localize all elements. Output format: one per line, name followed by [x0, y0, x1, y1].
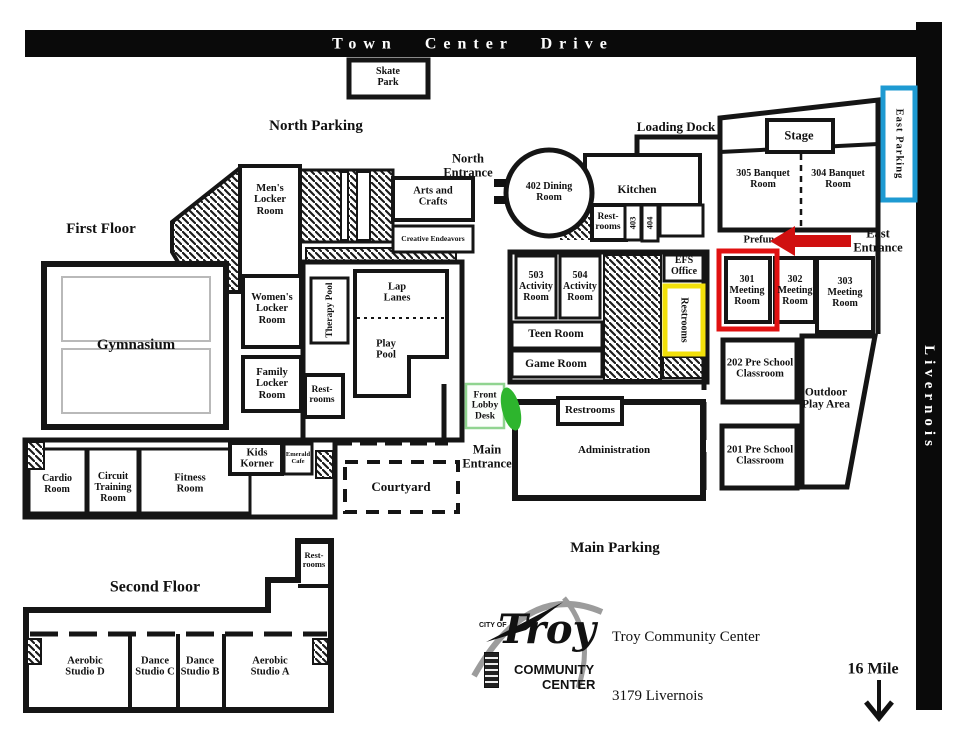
label-restrooms-second-floor: Rest- rooms [297, 551, 331, 569]
label-meeting-301: 301 Meeting Room [724, 275, 770, 307]
label-banquet-305: 305 Banquet Room [735, 169, 791, 191]
label-restrooms-dining: Rest- rooms [590, 212, 626, 233]
label-meeting-303: 303 Meeting Room [822, 277, 868, 309]
label-fitness-room: Fitness Room [167, 473, 213, 496]
locker-pool-walls [243, 262, 462, 440]
label-creative-endeavors: Creative Endeavors [401, 235, 464, 243]
label-sixteen-mile: 16 Mile [847, 660, 898, 677]
logo-community-text: COMMUNITY [514, 662, 594, 677]
label-gymnasium: Gymnasium [97, 337, 175, 353]
label-game-room: Game Room [525, 358, 587, 370]
label-room-403: 403 [628, 217, 637, 230]
label-arts-and-crafts: Arts and Crafts [401, 186, 465, 209]
label-efs-office: EFS Office [664, 256, 704, 278]
label-skate-park: Skate Park [365, 67, 411, 89]
label-courtyard: Courtyard [371, 480, 430, 494]
label-east-entrance: East Entrance [842, 228, 914, 255]
label-first-floor: First Floor [66, 221, 136, 237]
label-restrooms-yellow: Restrooms [678, 297, 689, 342]
label-prefunction: Prefunction [744, 234, 797, 245]
address-line-2: 3179 Livernois [612, 687, 760, 707]
road-label-livernois: Livernois [921, 345, 937, 451]
label-dining-402: 402 Dining Room [525, 182, 573, 204]
label-stage: Stage [784, 129, 813, 143]
label-emerald-cafe: Emerald Cafe [282, 451, 314, 465]
label-administration: Administration [578, 445, 650, 457]
label-dance-studio-c: Dance Studio C [132, 656, 178, 679]
label-therapy-pool: Therapy Pool [325, 282, 335, 337]
label-meeting-302: 302 Meeting Room [772, 275, 818, 307]
label-teen-room: Teen Room [528, 328, 583, 340]
label-banquet-304: 304 Banquet Room [810, 169, 866, 191]
label-womens-locker: Women's Locker Room [244, 292, 300, 326]
label-main-parking: Main Parking [570, 540, 660, 556]
label-dance-studio-b: Dance Studio B [177, 656, 223, 679]
troy-logo: CITY OF Troy COMMUNITY CENTER [468, 588, 608, 706]
second-floor-walls [26, 541, 331, 710]
label-loading-dock: Loading Dock [637, 120, 715, 134]
facility-map: Town Center Drive Livernois Skate Park N… [0, 0, 964, 740]
label-kitchen: Kitchen [618, 184, 657, 196]
label-aerobic-studio-a: Aerobic Studio A [240, 656, 300, 679]
label-north-entrance: North Entrance [428, 153, 508, 180]
label-circuit-training: Circuit Training Room [88, 472, 138, 504]
label-room-404: 404 [645, 217, 654, 230]
label-preschool-202: 202 Pre School Classroom [724, 358, 796, 381]
label-restrooms-pool: Rest- rooms [305, 385, 339, 406]
address-block: Troy Community Center 3179 Livernois Tro… [612, 589, 760, 740]
label-mens-locker: Men's Locker Room [244, 183, 296, 217]
label-main-entrance: Main Entrance [451, 444, 523, 471]
label-north-parking: North Parking [269, 118, 363, 134]
label-activity-503: 503 Activity Room [513, 271, 559, 303]
label-preschool-201: 201 Pre School Classroom [724, 445, 796, 468]
road-label-town-center-drive: Town Center Drive [332, 35, 614, 52]
label-east-parking: East Parking [893, 109, 904, 180]
label-family-locker: Family Locker Room [247, 367, 297, 401]
label-play-pool: Play Pool [368, 339, 404, 362]
label-second-floor: Second Floor [110, 578, 200, 595]
address-line-1: Troy Community Center [612, 628, 760, 648]
banquet-walls [720, 100, 878, 230]
label-front-lobby-desk: Front Lobby Desk [468, 391, 502, 422]
label-restrooms-admin: Restrooms [565, 405, 615, 417]
logo-troy-text: Troy [498, 606, 596, 653]
label-outdoor-play-area: Outdoor Play Area [798, 387, 854, 412]
label-kids-korner: Kids Korner [234, 448, 280, 471]
logo-building-icon [484, 652, 499, 688]
label-activity-504: 504 Activity Room [557, 271, 603, 303]
label-cardio-room: Cardio Room [36, 474, 78, 496]
label-aerobic-studio-d: Aerobic Studio D [55, 656, 115, 679]
label-lap-lanes: Lap Lanes [376, 282, 418, 305]
logo-center-text: CENTER [542, 677, 595, 692]
